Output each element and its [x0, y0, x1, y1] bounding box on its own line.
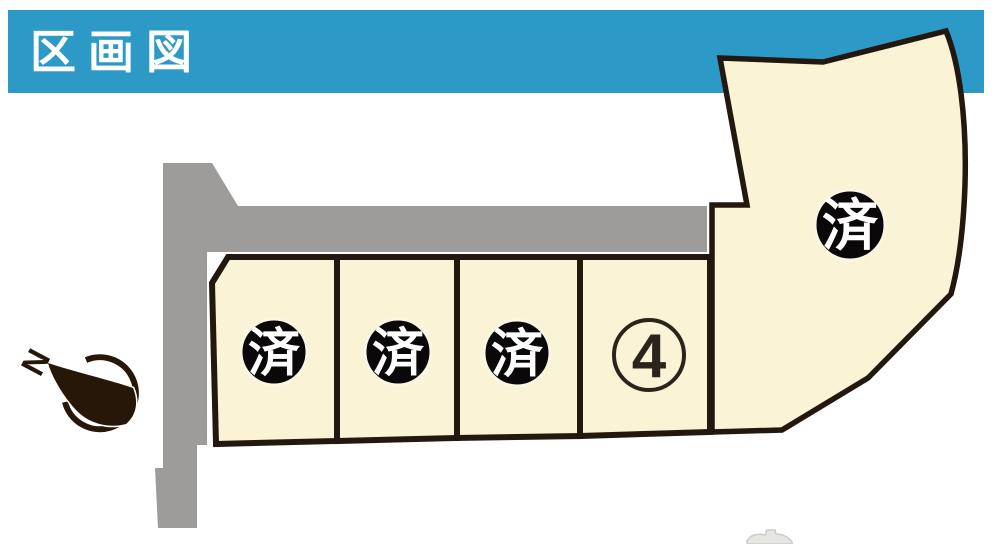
sold-badge-label: 済 [372, 325, 425, 383]
north-arrow-icon [48, 363, 136, 426]
lot-4-number: 4 [632, 322, 667, 391]
sold-badge-label: 済 [491, 326, 544, 384]
page: 区画図 済 済 済 済 4 [0, 0, 1000, 544]
north-label: N [14, 343, 58, 381]
watermark-logo [747, 530, 792, 544]
compass: N [14, 343, 137, 429]
sold-badge-lot-5: 済 [815, 190, 885, 260]
sold-badge-label: 済 [248, 325, 301, 383]
sold-badge-lot-2: 済 [365, 319, 431, 385]
sold-badge-lot-1: 済 [241, 319, 307, 385]
sold-badge-lot-3: 済 [484, 320, 550, 386]
sold-badge-label: 済 [822, 194, 879, 257]
site-plan-canvas: 済 済 済 済 4 N [0, 0, 1000, 544]
